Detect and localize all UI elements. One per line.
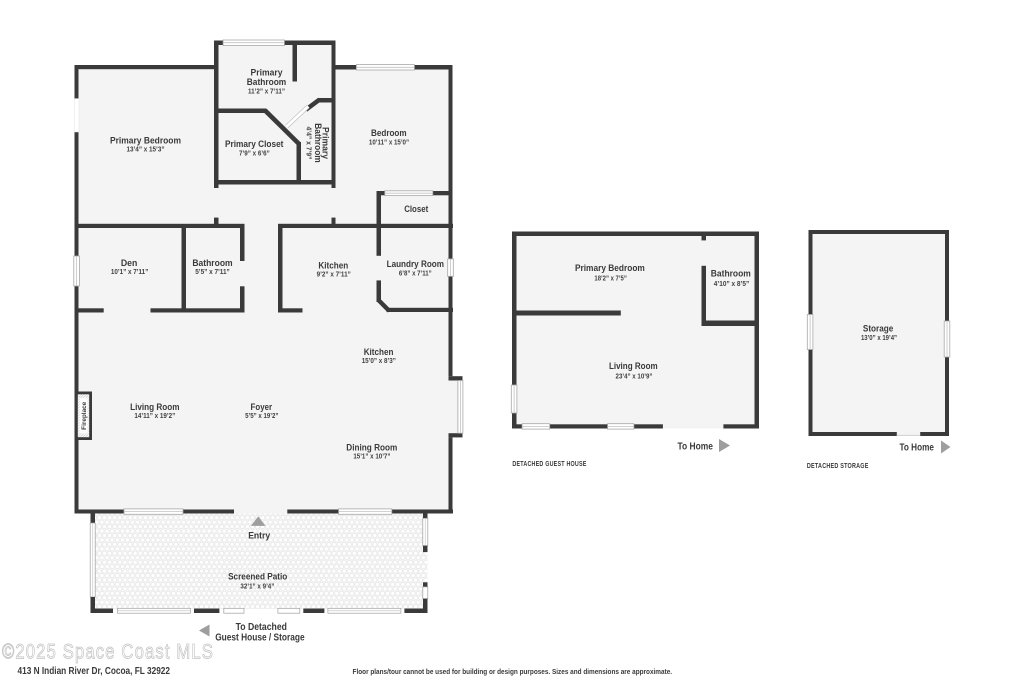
svg-text:11’2” x 7’11”: 11’2” x 7’11”	[248, 88, 285, 95]
svg-text:Living Room: Living Room	[130, 402, 179, 412]
svg-text:Den: Den	[121, 258, 138, 268]
svg-text:15’1” x 10’7”: 15’1” x 10’7”	[353, 453, 390, 460]
svg-text:©2025 Space Coast MLS: ©2025 Space Coast MLS	[2, 640, 214, 664]
svg-text:DETACHED STORAGE: DETACHED STORAGE	[807, 461, 869, 470]
svg-text:Closet: Closet	[404, 204, 428, 214]
svg-text:14’11” x 19’2”: 14’11” x 19’2”	[134, 413, 175, 420]
svg-text:Storage: Storage	[863, 324, 893, 334]
svg-text:Bathroom: Bathroom	[247, 77, 287, 87]
svg-text:15’0” x 8’3”: 15’0” x 8’3”	[362, 358, 396, 365]
svg-text:To Home: To Home	[900, 443, 935, 454]
svg-text:Primary Closet: Primary Closet	[225, 139, 284, 149]
svg-text:Bathroom: Bathroom	[313, 123, 323, 163]
svg-text:Primary: Primary	[251, 67, 283, 77]
svg-text:5’5” x 19’2”: 5’5” x 19’2”	[245, 413, 278, 420]
svg-text:4’10” x 8’5”: 4’10” x 8’5”	[714, 281, 749, 288]
svg-text:5’5” x 7’11”: 5’5” x 7’11”	[195, 269, 230, 276]
svg-text:18’2” x 7’5”: 18’2” x 7’5”	[594, 275, 626, 282]
svg-text:32’1” x 9’4”: 32’1” x 9’4”	[240, 583, 274, 590]
svg-text:Kitchen: Kitchen	[318, 261, 348, 271]
svg-text:10’11” x 15’0”: 10’11” x 15’0”	[369, 139, 409, 146]
svg-text:4’4” x 7’9”: 4’4” x 7’9”	[305, 127, 312, 160]
svg-text:9’2” x 7’11”: 9’2” x 7’11”	[317, 272, 351, 279]
svg-text:13’4” x 15’3”: 13’4” x 15’3”	[127, 147, 165, 154]
svg-text:413 N Indian River Dr, Cocoa,: 413 N Indian River Dr, Cocoa, FL 32922	[18, 665, 171, 677]
svg-text:Bathroom: Bathroom	[192, 258, 232, 268]
svg-text:Primary Bedroom: Primary Bedroom	[575, 263, 645, 273]
svg-text:To Detached: To Detached	[236, 622, 287, 633]
svg-text:13’0” x 19’4”: 13’0” x 19’4”	[861, 335, 897, 342]
svg-text:10’1” x 7’11”: 10’1” x 7’11”	[111, 269, 148, 276]
svg-text:DETACHED GUEST HOUSE: DETACHED GUEST HOUSE	[512, 459, 586, 468]
svg-text:To Home: To Home	[677, 442, 713, 453]
svg-text:Bedroom: Bedroom	[371, 128, 407, 138]
svg-text:Primary Bedroom: Primary Bedroom	[110, 136, 181, 146]
svg-text:Screened Patio: Screened Patio	[228, 572, 288, 582]
svg-text:Entry: Entry	[248, 531, 270, 541]
svg-text:23’4” x 10’9”: 23’4” x 10’9”	[616, 373, 653, 380]
svg-text:Laundry Room: Laundry Room	[387, 259, 444, 269]
svg-text:6’8” x 7’11”: 6’8” x 7’11”	[399, 270, 432, 277]
svg-text:Fireplace: Fireplace	[81, 401, 88, 430]
svg-text:Living Room: Living Room	[609, 361, 658, 371]
svg-text:Floor plans/tour cannot be use: Floor plans/tour cannot be used for buil…	[353, 667, 673, 676]
svg-text:Bathroom: Bathroom	[711, 269, 751, 279]
svg-text:Kitchen: Kitchen	[364, 347, 394, 357]
svg-text:Guest House / Storage: Guest House / Storage	[215, 633, 305, 644]
svg-text:Dining Room: Dining Room	[346, 442, 397, 452]
svg-text:7’9” x 6’6”: 7’9” x 6’6”	[239, 151, 270, 158]
svg-text:Foyer: Foyer	[251, 402, 273, 412]
